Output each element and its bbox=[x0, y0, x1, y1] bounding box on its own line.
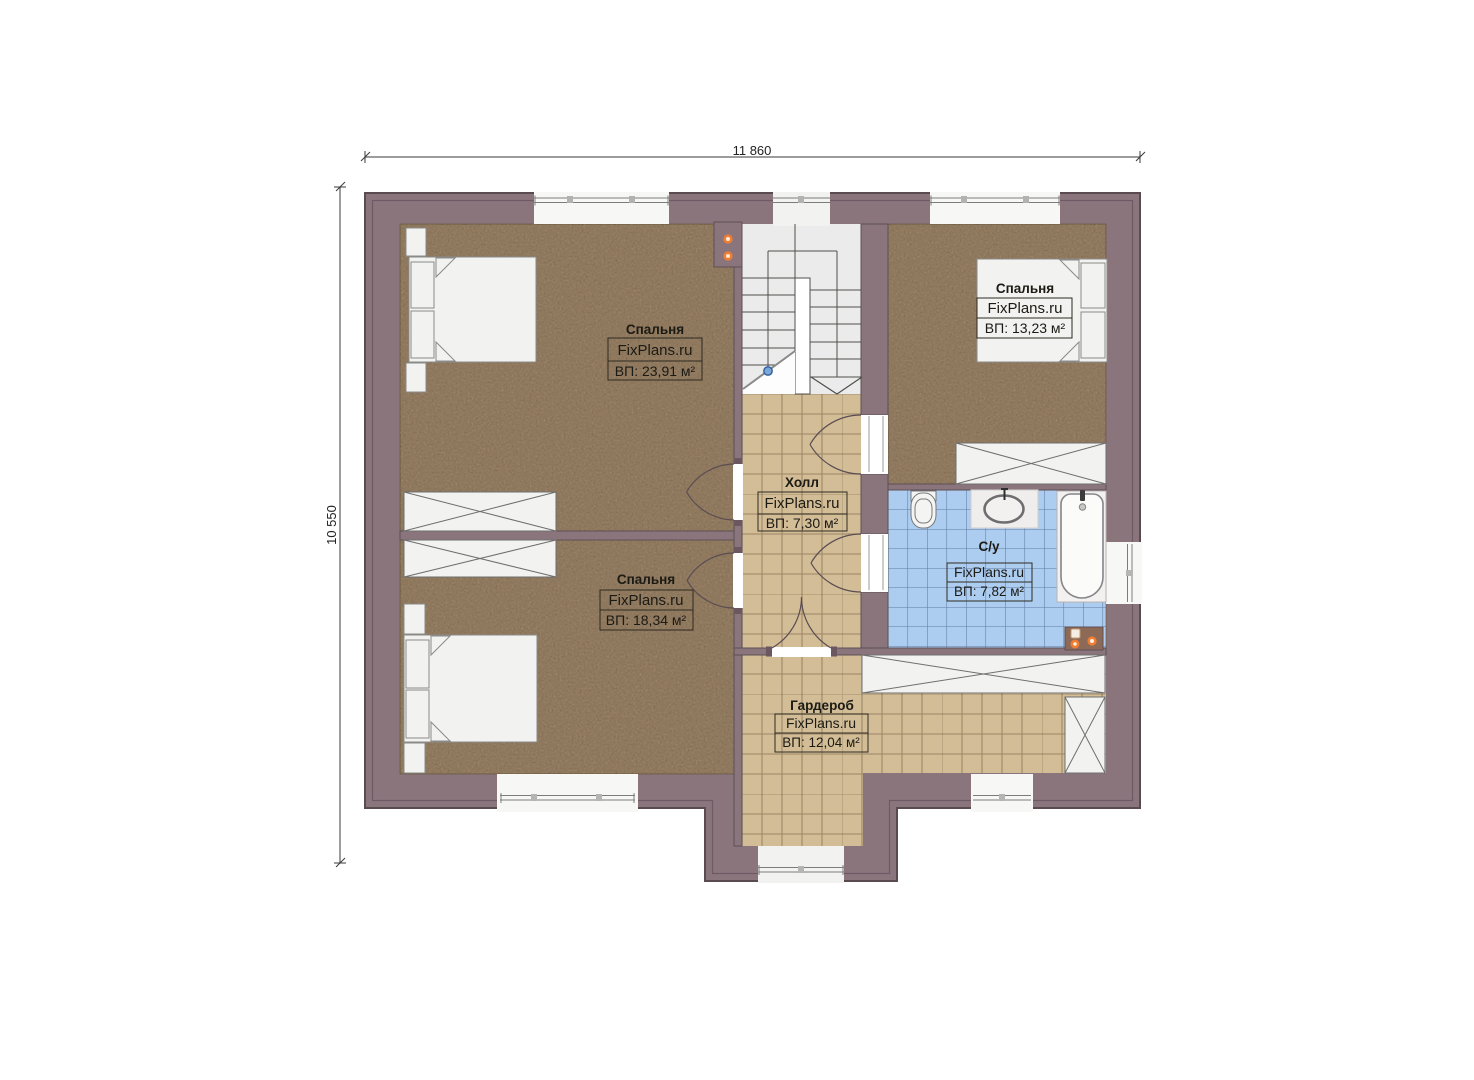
svg-text:ВП: 13,23 м²: ВП: 13,23 м² bbox=[985, 320, 1066, 336]
svg-text:ВП: 7,82 м²: ВП: 7,82 м² bbox=[954, 584, 1025, 599]
svg-text:FixPlans.ru: FixPlans.ru bbox=[617, 342, 692, 359]
svg-text:FixPlans.ru: FixPlans.ru bbox=[954, 564, 1024, 580]
svg-text:ВП: 18,34 м²: ВП: 18,34 м² bbox=[606, 612, 687, 628]
svg-text:FixPlans.ru: FixPlans.ru bbox=[786, 715, 856, 731]
svg-text:ВП: 12,04 м²: ВП: 12,04 м² bbox=[782, 735, 860, 750]
svg-text:Спальня: Спальня bbox=[617, 572, 675, 587]
svg-text:ВП: 7,30 м²: ВП: 7,30 м² bbox=[766, 515, 839, 531]
svg-text:10 550: 10 550 bbox=[324, 505, 339, 545]
svg-text:FixPlans.ru: FixPlans.ru bbox=[608, 592, 683, 609]
svg-text:11 860: 11 860 bbox=[733, 143, 772, 158]
svg-text:FixPlans.ru: FixPlans.ru bbox=[987, 300, 1062, 317]
svg-text:ВП: 23,91 м²: ВП: 23,91 м² bbox=[615, 363, 696, 379]
svg-text:С/у: С/у bbox=[978, 539, 1000, 554]
svg-text:Спальня: Спальня bbox=[996, 281, 1054, 296]
svg-text:Гардероб: Гардероб bbox=[790, 698, 854, 713]
svg-text:Спальня: Спальня bbox=[626, 322, 684, 337]
svg-text:FixPlans.ru: FixPlans.ru bbox=[764, 495, 839, 512]
svg-text:Холл: Холл bbox=[785, 475, 819, 490]
